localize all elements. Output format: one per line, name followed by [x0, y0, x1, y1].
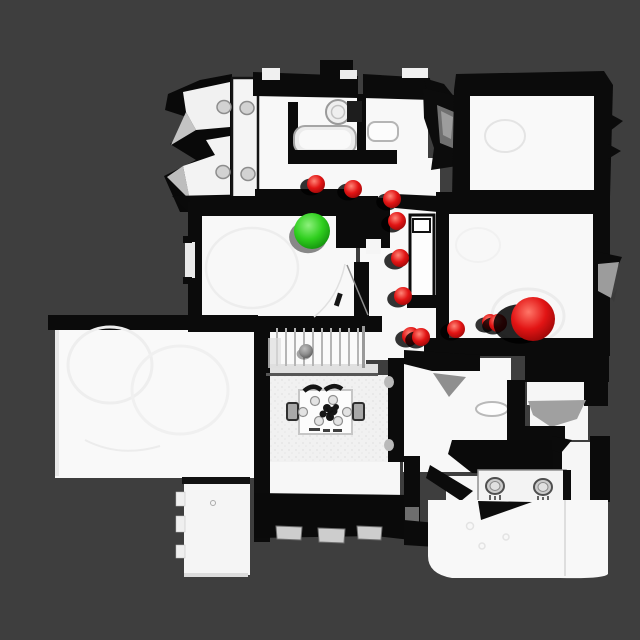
- entry-door-column: [232, 78, 258, 210]
- floorplan-canvas[interactable]: [0, 0, 640, 640]
- door-knob: [217, 101, 231, 114]
- step: [357, 526, 382, 540]
- toilet: [326, 100, 350, 124]
- room-top-right: [452, 71, 623, 199]
- waypoint-marker: [391, 249, 409, 267]
- doorway: [185, 242, 195, 278]
- bottom-center: [254, 493, 411, 543]
- room-bottom-right: [428, 500, 608, 578]
- chair: [287, 403, 298, 420]
- step: [318, 528, 345, 543]
- goal-marker: [511, 297, 555, 341]
- waypoint-marker: [388, 212, 406, 230]
- door-knob: [241, 168, 255, 181]
- waypoint-marker: [447, 320, 465, 338]
- waypoint-marker: [344, 180, 362, 198]
- chair: [353, 403, 364, 420]
- step: [276, 526, 302, 540]
- waypoint-marker: [307, 175, 325, 193]
- porch-floor: [184, 483, 250, 575]
- waypoint-marker: [412, 328, 430, 346]
- waypoint-marker: [383, 190, 401, 208]
- waypoint-marker: [394, 287, 412, 305]
- start-marker: [294, 213, 330, 249]
- sink: [368, 122, 398, 141]
- door-knob: [240, 102, 254, 115]
- entry-torn-mesh: [164, 74, 258, 214]
- door-knob: [216, 166, 230, 179]
- scene-viewport[interactable]: [0, 0, 640, 640]
- object-ball: [299, 344, 313, 358]
- room-mid-left-floor: [202, 214, 356, 318]
- ceiling-light: [476, 402, 508, 416]
